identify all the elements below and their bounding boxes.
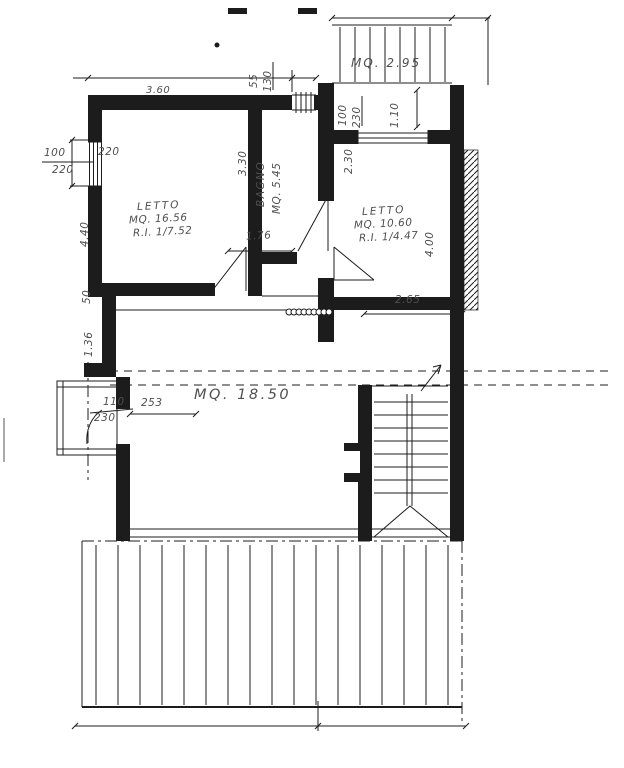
dim-corridor-w: 1.76 <box>246 229 272 243</box>
terrace <box>82 541 462 722</box>
dim-letto2-depth: 4.00 <box>424 232 437 257</box>
balcony-area: MQ. 2.95 <box>351 57 421 70</box>
dim-west-door-w: 110 <box>103 396 125 409</box>
dim-top-window-w: 55 <box>248 74 261 88</box>
dim-left-window-sill: 220 <box>52 164 74 177</box>
dim-left-window-h: 220 <box>98 146 120 159</box>
dim-hall-depth: 1.36 <box>83 332 96 357</box>
dim-closet-depth: 50 <box>81 290 94 304</box>
dim-west-door-h: 230 <box>94 412 116 425</box>
niche-block <box>344 443 370 482</box>
top-balcony <box>329 15 491 85</box>
dim-balcony-door-w: 100 <box>337 104 350 126</box>
floor-plan-page: 3.60 55 130 100 220 220 LETTO MQ. 16.56 … <box>0 0 624 768</box>
radiator <box>286 309 332 315</box>
stair-direction-arrow <box>421 365 441 391</box>
interior-lines <box>116 296 450 537</box>
dim-letto2-sill: 2.30 <box>343 149 356 174</box>
dim-letto1-depth: 4.40 <box>79 222 92 247</box>
dim-balcony-door-h: 230 <box>351 106 364 128</box>
dim-west-offset: 253 <box>141 397 163 410</box>
dim-top-width: 3.60 <box>146 84 170 97</box>
beam-dashes <box>110 371 612 385</box>
dim-bagno-depth: 3.30 <box>237 151 250 176</box>
dim-balcony-depth: 1.10 <box>389 103 402 128</box>
dim-top-window-h: 130 <box>262 70 275 92</box>
staircase <box>372 365 448 537</box>
dim-left-window-w: 100 <box>44 147 66 160</box>
party-wall-hatch <box>464 150 478 310</box>
room-living-area: MQ. 18.50 <box>194 389 291 402</box>
door-letto1 <box>212 247 246 291</box>
door-letto2 <box>334 247 374 280</box>
door-bagno <box>298 196 328 251</box>
door-swings <box>212 196 374 291</box>
room-bagno-name: BAGNO <box>255 161 268 207</box>
room-bagno-area: MQ. 5.45 <box>271 163 284 214</box>
dim-letto2-w: 2.65 <box>395 294 420 307</box>
floor-plan-linework <box>0 0 624 768</box>
